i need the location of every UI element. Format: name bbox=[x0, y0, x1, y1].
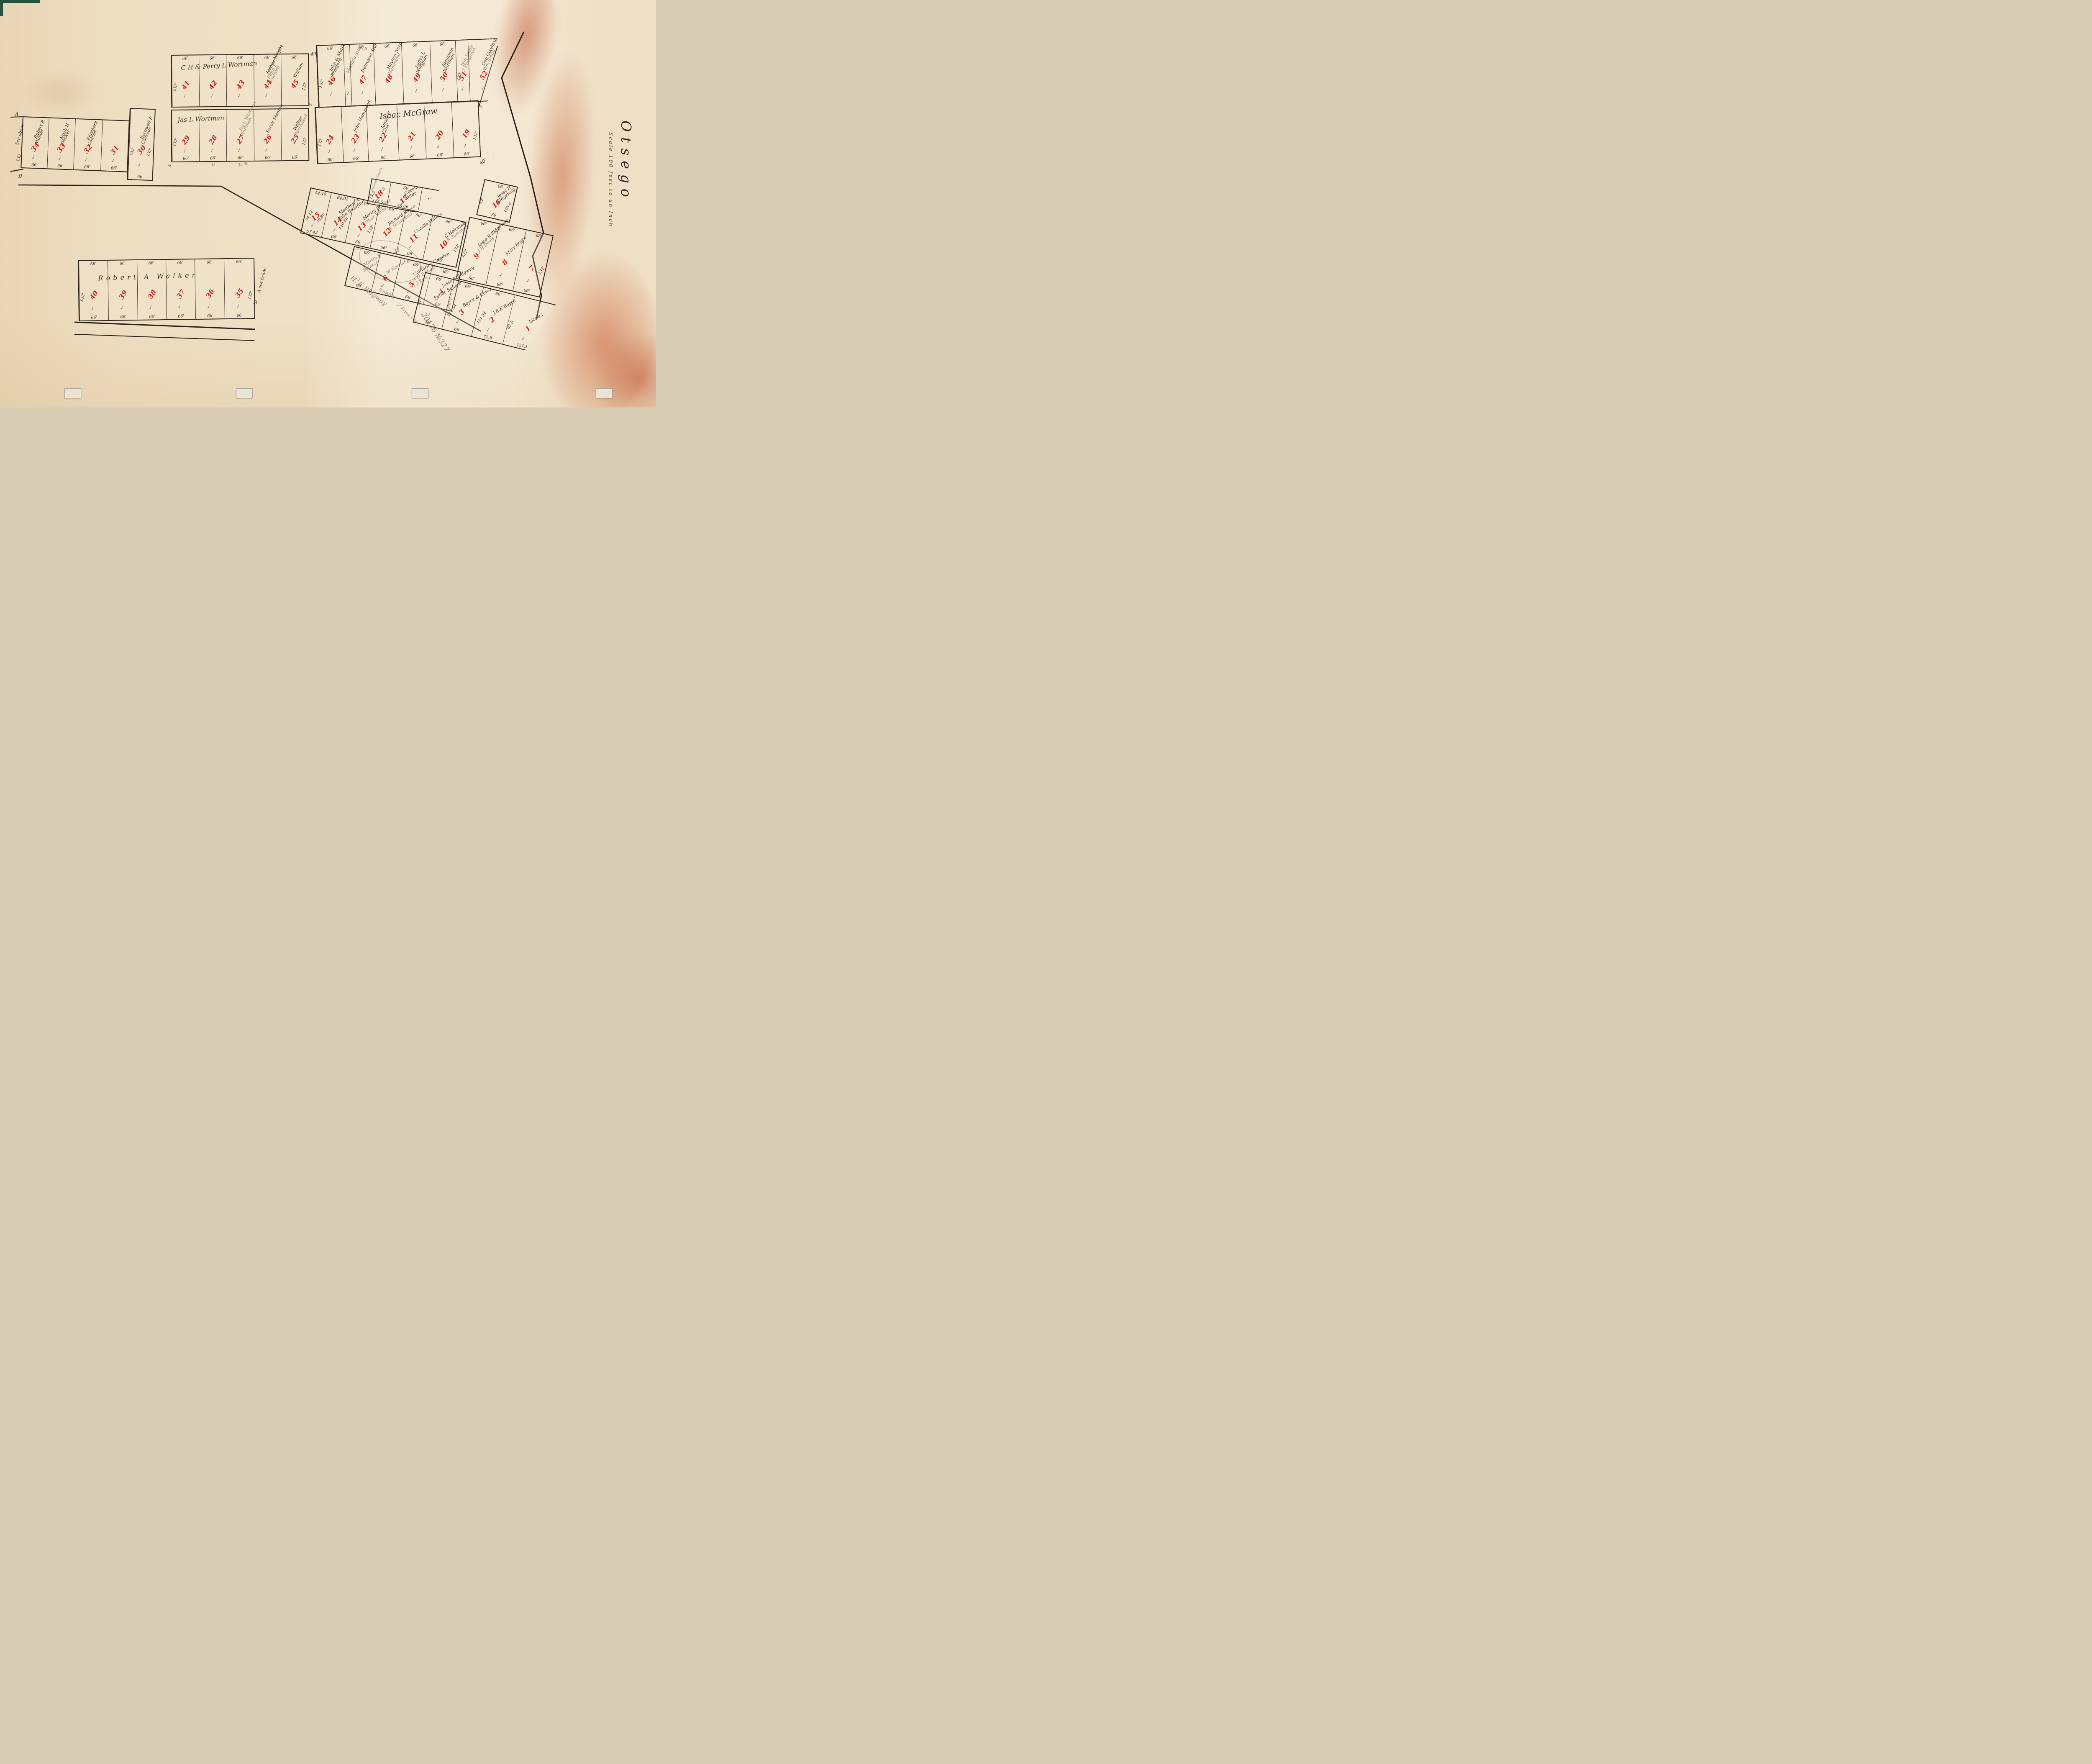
lot-number: 21 bbox=[406, 130, 418, 142]
lot-number: 38 bbox=[146, 288, 158, 300]
lot-dimension-bottom: 66' bbox=[149, 314, 156, 319]
lot-owner-names: Boyce & Cowden bbox=[463, 304, 464, 308]
owner-name: Martin Bainter bbox=[362, 217, 365, 221]
lot-dimension-bottom: 66' bbox=[468, 276, 475, 282]
lot-33: 66'Noah HDecker33✓ bbox=[47, 118, 75, 169]
lot-number: 41 bbox=[180, 79, 192, 91]
lot-dimension-top: 66' bbox=[509, 228, 515, 233]
lot-dimension-top: 66' bbox=[464, 284, 471, 290]
owner-name: James L bbox=[415, 67, 419, 69]
lot-dimension-bottom: 66' bbox=[331, 234, 337, 240]
surveyor-checkmark: ✓ bbox=[345, 90, 351, 97]
lot-number: 30 bbox=[135, 144, 147, 156]
lot-35: 66'66'35✓ bbox=[224, 259, 254, 318]
lot-dimension-top: 66 bbox=[497, 184, 503, 190]
surveyor-checkmark: ✓ bbox=[486, 327, 491, 333]
pencil-note-below: 33 bbox=[210, 162, 216, 167]
lot-number: 11 bbox=[408, 232, 420, 244]
owner-name: John & Matilda bbox=[329, 70, 333, 72]
lot-34: 66'Robert RWalker34✓ bbox=[21, 117, 49, 168]
lot-number: 37 bbox=[175, 288, 187, 300]
lot-block-A: C H & Perry L Wortman132'132'66'41✓66'42… bbox=[171, 54, 309, 108]
lot-dimension-top: 66' bbox=[210, 56, 216, 61]
lot-dimension-top: 54.48 bbox=[315, 191, 327, 197]
surveyor-checkmark: ✓ bbox=[406, 289, 411, 296]
owner-name: Dennison Sturtz bbox=[361, 72, 365, 74]
lot-dimension-bottom: 66' bbox=[409, 154, 416, 159]
surveyor-checkmark: ✓ bbox=[209, 92, 215, 100]
lot-owner-names: Jas E Case bbox=[428, 198, 429, 203]
lot-dimension-top: 64.02 bbox=[336, 195, 349, 202]
surveyor-checkmark: ✓ bbox=[209, 147, 215, 155]
pencil-annotation: 8 bbox=[419, 265, 423, 271]
lot-number: 32 bbox=[82, 143, 94, 155]
surveyor-checkmark: ✓ bbox=[455, 319, 460, 326]
lot-owner-names: Public Square bbox=[433, 297, 435, 301]
surveyor-checkmark: ✓ bbox=[119, 304, 125, 312]
surveyor-checkmark: ✓ bbox=[379, 146, 385, 153]
owner-name: Haynes Norris bbox=[386, 68, 390, 70]
surveyor-checkmark: ✓ bbox=[359, 90, 366, 97]
lot-number: 47 bbox=[357, 74, 369, 86]
lot-dimension-top: 66' bbox=[182, 56, 189, 61]
lot-dimension-top: 66' bbox=[236, 259, 242, 264]
map-title-group: Otsego Scale 100 feet to an Inch bbox=[608, 121, 634, 227]
surveyor-checkmark: ✓ bbox=[83, 156, 90, 163]
lot-16: 666699'105.6Jesse RRidgeway16 bbox=[477, 180, 517, 221]
lot-dimension-bottom: 66' bbox=[497, 282, 503, 288]
lot-number: 31 bbox=[109, 144, 120, 156]
lot-dimension-bottom: 66' bbox=[120, 315, 127, 320]
surveyor-checkmark: ✓ bbox=[440, 86, 446, 94]
lot-number: 46 bbox=[326, 75, 338, 87]
owner-name-pencil: Bainter bbox=[362, 269, 364, 273]
lot-dimension-bottom: 66' bbox=[57, 164, 64, 168]
surveyor-checkmark: ✓ bbox=[435, 143, 441, 151]
lot-number: 42 bbox=[207, 79, 219, 91]
owner-name: Boyce & Cowden bbox=[462, 304, 464, 308]
lot-48: 66'Haynes NorrisHammond48 bbox=[373, 43, 404, 105]
lot-dimension-bottom: 66' bbox=[84, 165, 90, 169]
surveyor-checkmark: ✓ bbox=[413, 87, 419, 95]
lot-dimension-top: 66' bbox=[264, 55, 271, 60]
lot-number: 29 bbox=[180, 134, 192, 146]
owner-name: Barnwell F bbox=[140, 138, 144, 141]
lot-number: 16 bbox=[490, 197, 502, 210]
lot-24: 66'24✓ bbox=[315, 107, 344, 163]
surveyor-checkmark: ✓ bbox=[408, 144, 414, 152]
lot-dimension-bottom: 66' bbox=[210, 156, 217, 161]
lot-39: 66'66'39✓ bbox=[108, 260, 137, 320]
surveyor-checkmark: ✓ bbox=[236, 92, 242, 100]
lot-45: 66'William45 bbox=[281, 54, 308, 106]
owner-name: Public Square bbox=[433, 297, 436, 301]
lot-dimension-top: 66' bbox=[90, 262, 97, 267]
surveyor-checkmark: ✓ bbox=[462, 142, 469, 150]
lot-52: 143'Geo GoodhartWm Smith52✓ bbox=[467, 39, 499, 101]
lot-dimension-bottom: 66' bbox=[380, 155, 387, 160]
owner-name: Robert R bbox=[33, 138, 37, 140]
lot-dimension-left: 132' bbox=[461, 249, 469, 259]
lot-dimension-bottom: 66' bbox=[31, 163, 38, 167]
lot-dimension-right: 143' bbox=[491, 70, 498, 80]
lot-block-I: 666699'105.6Jesse RRidgeway16 bbox=[476, 179, 518, 223]
surveyor-checkmark: ✓ bbox=[525, 278, 530, 285]
lot-dimension-bottom: 66' bbox=[405, 295, 412, 300]
owner-name: Mary Boyce bbox=[505, 253, 508, 256]
lot-number: 43 bbox=[234, 78, 246, 90]
lot-dimension-top: 60' bbox=[436, 277, 442, 282]
lot-block-F: Robert A Walker132'132'66'66'40✓66'66'39… bbox=[78, 258, 255, 321]
lot-37: 66'66'37✓ bbox=[166, 259, 195, 319]
lot-dimension-bottom: 66' bbox=[523, 288, 530, 294]
surveyor-checkmark: ✓ bbox=[264, 92, 270, 99]
owner-name: Benjamin bbox=[441, 66, 446, 68]
lot-number: 7 bbox=[527, 264, 536, 272]
owner-name: James F bbox=[380, 127, 385, 129]
lot-32: 66'ElizabethConrad32✓ bbox=[73, 119, 103, 170]
lot-block-D: Isaac McGraw132'132'66'24✓66'John Hammon… bbox=[315, 100, 481, 164]
lot-dimension-top: 66' bbox=[415, 213, 422, 218]
surveyor-checkmark: ✓ bbox=[137, 162, 143, 169]
lot-owner-names: Lizzie Nelson bbox=[529, 320, 530, 325]
lot-dimension-bottom: 57.42 bbox=[306, 229, 318, 235]
lot-dimension-top: 66' bbox=[442, 269, 449, 275]
lot-dimension-right: 132' bbox=[538, 266, 546, 276]
lot-number: 9 bbox=[472, 251, 481, 260]
lot-number: 12 bbox=[381, 226, 393, 238]
lot-dimension-bottom: 66' bbox=[178, 314, 185, 319]
lot-block-B: 132'66'John & MatildaBradford46✓Malinda … bbox=[316, 38, 500, 108]
lot-number: 27 bbox=[234, 133, 246, 145]
lot-number: 45 bbox=[289, 78, 301, 90]
lot-dimension-bottom: 66' bbox=[464, 151, 470, 157]
lot-50: 66'BenjaminWortman50✓ bbox=[429, 41, 457, 103]
surveyor-checkmark: ✓ bbox=[374, 196, 380, 203]
lot-dimension-bottom: 66' bbox=[237, 156, 244, 161]
lot-27: 66'Jas L WortmanWortman27✓33 66 bbox=[226, 110, 254, 161]
lot-dimension-bottom: 66' bbox=[91, 315, 97, 320]
surveyor-checkmark: ✓ bbox=[399, 201, 405, 208]
surveyor-checkmark: ✓ bbox=[423, 205, 429, 212]
lot-number: 2 bbox=[488, 315, 497, 324]
lot-40: 66'66'40✓ bbox=[79, 261, 108, 320]
lot-dimension-bottom: 66' bbox=[437, 153, 444, 158]
lot-47: 66'Dennison Sturtz47✓ bbox=[349, 44, 375, 106]
lot-36: 66'66'36✓ bbox=[195, 259, 224, 319]
owner-name-pencil: Malinda Sturtz bbox=[346, 72, 350, 74]
lot-block-E: 66'Robert RWalker34✓66'Noah HDecker33✓66… bbox=[21, 116, 130, 172]
lot-number: 40 bbox=[88, 289, 100, 301]
surveyor-checkmark: ✓ bbox=[356, 233, 361, 239]
lot-30: 66'Barnwell FConrade30✓ bbox=[128, 109, 154, 180]
owner-name: Noah H bbox=[59, 138, 64, 141]
lot-number: 3 bbox=[457, 308, 466, 317]
lot-dimension-top: 66' bbox=[384, 44, 391, 49]
owner-name-pencil: J H Davis bbox=[477, 250, 480, 254]
owner-name: Walker bbox=[293, 129, 297, 131]
ink-annotation: 40' bbox=[310, 51, 318, 56]
lot-number: 1 bbox=[523, 324, 532, 333]
lot-number: 33 bbox=[55, 142, 67, 154]
lot-block-C: Jas L Wortman132'132'66'29✓66'28✓3366'Ja… bbox=[171, 108, 309, 162]
lot-dimension-bottom: 151.14 bbox=[516, 343, 531, 350]
lot-dimension-bottom: 66' bbox=[207, 313, 214, 318]
lot-dimension-top: 66 bbox=[403, 186, 409, 191]
surveyor-checkmark: ✓ bbox=[182, 92, 188, 100]
owner-name: Lizzie Nelson bbox=[528, 320, 531, 324]
lot-dimension-top: 66' bbox=[536, 233, 542, 239]
margin-note-e_bottom: B bbox=[18, 173, 23, 179]
surveyor-checkmark: ✓ bbox=[326, 148, 333, 155]
lot-number: 8 bbox=[500, 258, 509, 267]
surveyor-checkmark: ✓ bbox=[110, 157, 116, 164]
lot-dimension-top: 66' bbox=[480, 221, 487, 227]
lot-number: 28 bbox=[207, 133, 219, 146]
lot-19: 66'19✓ bbox=[451, 101, 480, 158]
margin-note-e_top: A bbox=[15, 111, 19, 117]
lot-number: 50 bbox=[438, 71, 450, 83]
lot-dimension-bottom: 72.6 bbox=[483, 334, 492, 341]
plat-map-page: C H & Perry L Wortman132'132'66'41✓66'42… bbox=[0, 0, 656, 408]
lot-38: 66'66'38✓ bbox=[137, 260, 167, 320]
surveyor-checkmark: ✓ bbox=[310, 223, 315, 229]
lot-owner-names: Mary Boyce bbox=[506, 253, 507, 257]
surveyor-checkmark: ✓ bbox=[236, 147, 242, 154]
lot: 82.5Jas E Case✓ bbox=[418, 188, 438, 215]
lot-dimension-bottom: 66' bbox=[454, 327, 461, 333]
lot-number: 19 bbox=[460, 128, 472, 140]
surveyor-checkmark: ✓ bbox=[328, 91, 334, 98]
lot-number: 10 bbox=[437, 238, 449, 251]
surveyor-checkmark: ✓ bbox=[90, 305, 96, 312]
surveyor-checkmark: ✓ bbox=[521, 336, 526, 342]
lot-25: 66'WalkerPurchased25 bbox=[281, 109, 308, 161]
map-title: Otsego bbox=[618, 121, 634, 227]
lot-dimension-top: 66' bbox=[495, 292, 502, 297]
lot-dimension-right: 105.6 bbox=[503, 202, 513, 214]
surveyor-checkmark: ✓ bbox=[206, 303, 212, 310]
owner-name-pencil: Wm Smith bbox=[461, 65, 465, 67]
lot-number: 44 bbox=[261, 78, 273, 90]
lot-dimension-top: 66' bbox=[327, 46, 334, 51]
lot-dimension-top: 66' bbox=[206, 260, 213, 265]
lot-dimension-top: 66' bbox=[439, 42, 446, 47]
owner-name: Richard Boyce bbox=[387, 223, 390, 226]
surveyor-checkmark: ✓ bbox=[177, 303, 183, 311]
surveyor-checkmark: ✓ bbox=[235, 303, 241, 310]
lot-dimension-bottom: 66' bbox=[353, 156, 359, 162]
surveyor-checkmark: ✓ bbox=[56, 155, 63, 162]
lot-26: 66'Sarah Stanton26✓ bbox=[254, 109, 281, 161]
lot-number: 13 bbox=[356, 220, 368, 233]
lot-number: 52 bbox=[478, 69, 490, 81]
lot-44: 66'Joshua WrightFlora JBradford44✓ bbox=[254, 54, 281, 106]
owner-name: J.E.K Boyce bbox=[492, 312, 495, 315]
surveyor-checkmark: ✓ bbox=[332, 227, 337, 234]
lot-dimension-top: 66' bbox=[148, 261, 155, 266]
lot-owner-names: Jesse R RidgewayJ H Davis bbox=[477, 244, 479, 254]
lot-dimension-bottom: 66' bbox=[436, 258, 443, 263]
lot-number: 25 bbox=[289, 133, 301, 145]
lot-number: 20 bbox=[433, 129, 445, 141]
lot-number: 36 bbox=[204, 287, 216, 300]
lot-number: 49 bbox=[411, 72, 423, 84]
surveyor-checkmark: ✓ bbox=[31, 154, 37, 161]
surveyor-checkmark: ✓ bbox=[498, 272, 503, 279]
lot-number: 24 bbox=[324, 133, 336, 146]
surveyor-checkmark: ✓ bbox=[148, 304, 154, 311]
owner-name: Jas E Case bbox=[427, 198, 430, 203]
lot-46: 66'John & MatildaBradford46✓ bbox=[317, 45, 346, 107]
lot-dimension-top: 66' bbox=[237, 56, 244, 61]
lot-dimension-top: 66' bbox=[119, 261, 126, 266]
lot-dimension-top: 138.6 bbox=[528, 300, 540, 307]
lot-23: 66'John Hammond23✓ bbox=[341, 106, 368, 162]
lot-31: 66'31✓ bbox=[100, 120, 129, 171]
lot-dimension-bottom: 66' bbox=[328, 157, 334, 163]
lot-owner-names: J.E.K Boyce bbox=[493, 311, 495, 316]
lot-dimension-bottom: 66' bbox=[355, 240, 361, 245]
lot-dimension-top: 66' bbox=[445, 219, 452, 225]
owner-name-struck: Joshua Wright bbox=[265, 72, 269, 74]
lot-dimension-bottom: 66' bbox=[183, 156, 190, 161]
surveyor-checkmark: ✓ bbox=[182, 147, 188, 155]
lot-number: 26 bbox=[261, 133, 273, 145]
lot-blocks-layer: C H & Perry L Wortman132'132'66'41✓66'42… bbox=[0, 0, 656, 408]
lot-dimension-bottom: 66' bbox=[292, 155, 298, 160]
lot-dimension-bottom: 66' bbox=[111, 166, 117, 170]
lot-number: 22 bbox=[377, 131, 389, 143]
lot-number: 39 bbox=[117, 289, 129, 301]
lot-dimension-top: 66' bbox=[413, 43, 419, 48]
surveyor-checkmark: ✓ bbox=[351, 147, 358, 154]
lot-dimension-bottom: 66' bbox=[264, 155, 271, 160]
surveyor-checkmark: ✓ bbox=[480, 85, 486, 92]
pencil-note-below: 33 66 bbox=[238, 162, 249, 167]
lot-number: 34 bbox=[29, 141, 41, 153]
lot-dimension-left: 99' bbox=[478, 197, 485, 205]
lot-dimension-bottom: 66' bbox=[236, 313, 243, 318]
lot-number: 48 bbox=[383, 73, 395, 85]
lot-dimension-left: 111.54 bbox=[476, 311, 488, 325]
lot-49: 66'James LWortman49✓ bbox=[401, 42, 432, 104]
owner-name: Jesse R Ridgeway bbox=[477, 245, 480, 248]
lot-17: 6636 66Cecelia AWater17✓ bbox=[387, 182, 422, 212]
owner-name: Geo Goodhart bbox=[481, 64, 485, 67]
pencil-annotation: 18 bbox=[361, 46, 367, 51]
lot-dimension-top: 66' bbox=[291, 55, 298, 60]
lot-dimension-top: 66' bbox=[177, 260, 184, 265]
lot-dimension-right: 82.5 bbox=[428, 201, 436, 211]
owner-name-pencil: Jas L Wortman bbox=[238, 130, 242, 132]
lot-number: 23 bbox=[349, 132, 361, 144]
owner-name: Elizabeth bbox=[86, 139, 90, 141]
lot-dimension-bottom: 66 bbox=[491, 213, 497, 218]
lot-dimension-right: 132' bbox=[452, 244, 461, 253]
lot-block-E30: 132'132'66'Barnwell FConrade30✓ bbox=[127, 108, 156, 181]
surveyor-checkmark: ✓ bbox=[264, 146, 270, 154]
map-scale: Scale 100 feet to an Inch bbox=[608, 132, 614, 227]
lot-number: 35 bbox=[233, 287, 245, 299]
lot-dimension-bottom: 66' bbox=[137, 174, 144, 179]
surveyor-checkmark: ✓ bbox=[460, 85, 466, 93]
